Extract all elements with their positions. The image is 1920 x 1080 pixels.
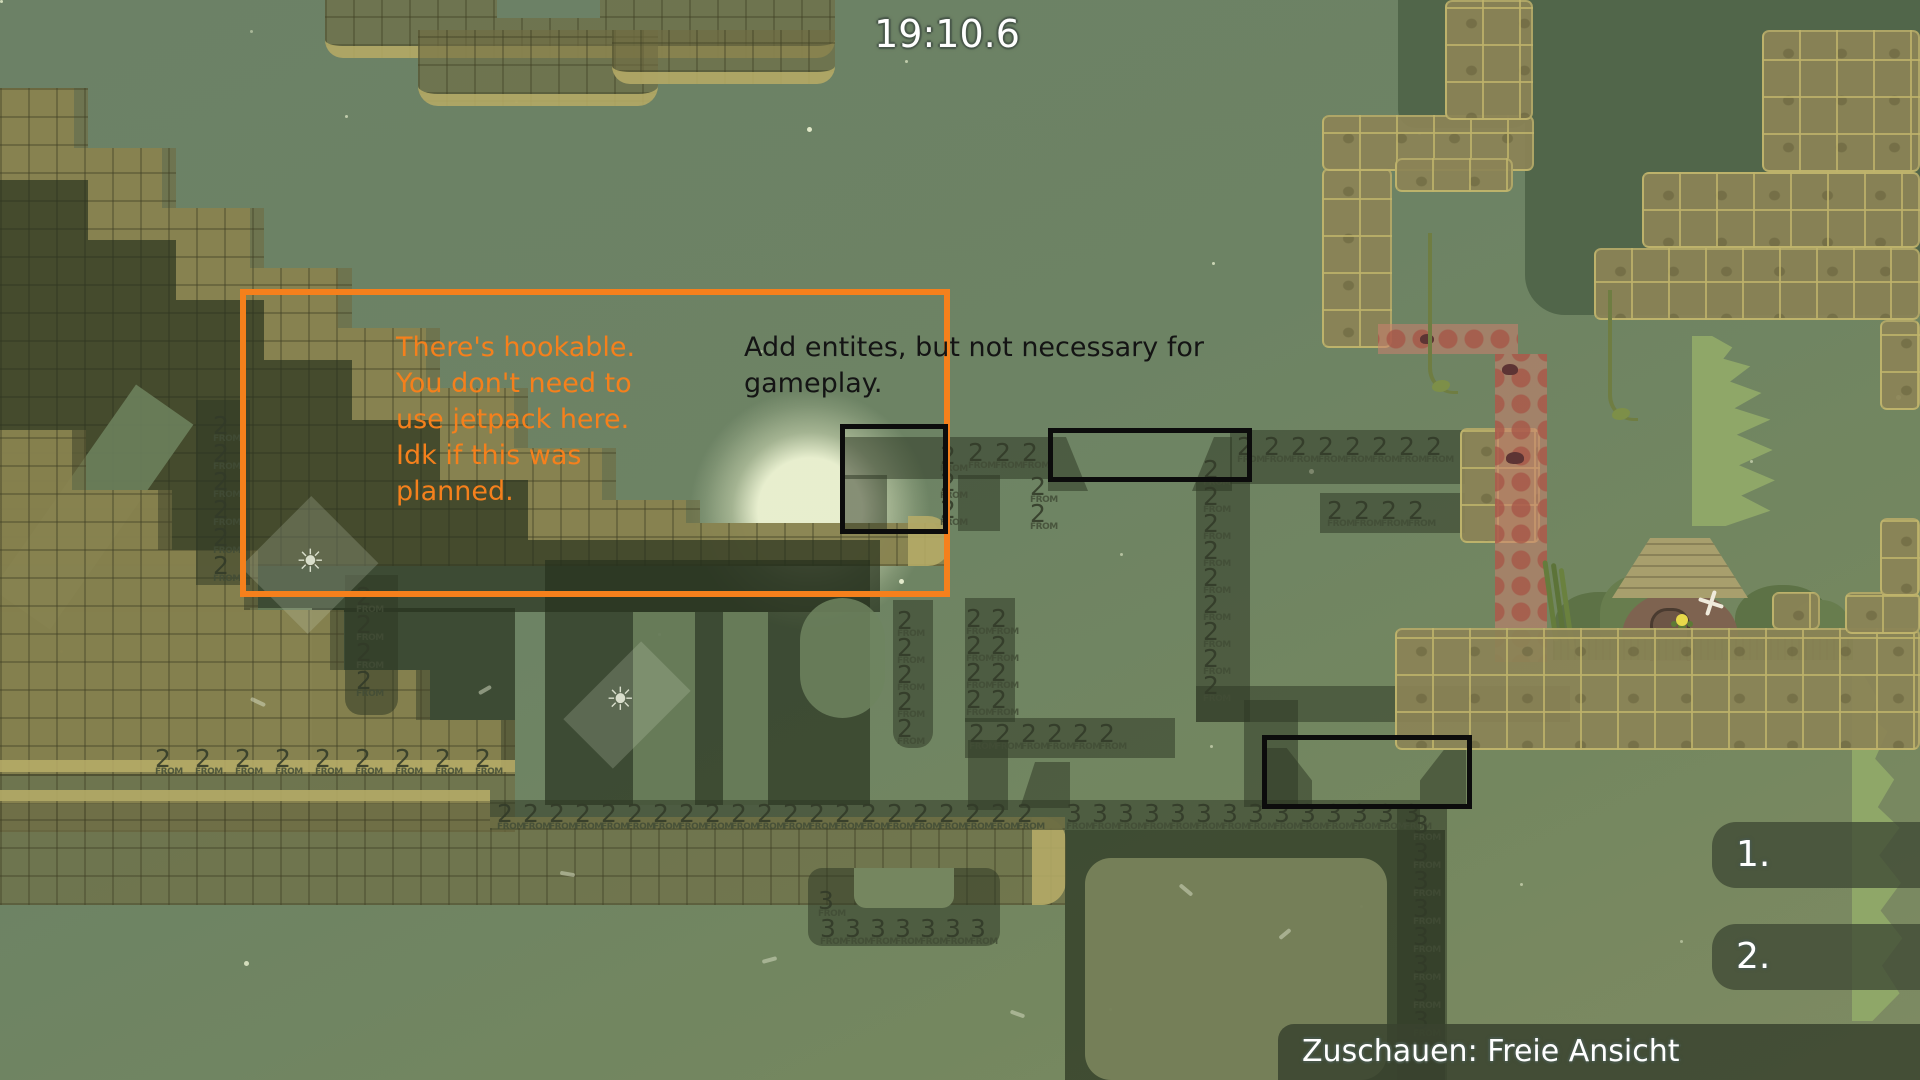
flower-icon (1676, 614, 1688, 626)
vine (1428, 233, 1458, 394)
game-viewport[interactable]: 2FROM2FROM2FROM2FROM2FROM2FROM2FROM2FROM… (0, 0, 1920, 1080)
tele-label: 2FROM (395, 746, 425, 777)
black-note: Add entites, but not necessary for gamep… (744, 330, 1264, 402)
tele-label: 2FROM (155, 746, 185, 777)
tele-label: 2FROM (1426, 434, 1456, 465)
spectator-marker-1: 1. (1712, 822, 1920, 888)
tele-label: 2FROM (968, 440, 998, 471)
orange-note: There's hookable. You don't need to use … (396, 330, 716, 510)
tele-label: 2FROM (897, 716, 927, 747)
spectator-marker-1-label: 1. (1712, 822, 1920, 888)
tele-label: 2FROM (1030, 501, 1060, 532)
sun-icon: ☀ (606, 680, 635, 718)
tele-label: 2FROM (435, 746, 465, 777)
stone-bar (1395, 158, 1513, 192)
tele-label: 2FROM (355, 746, 385, 777)
stone-column (1445, 0, 1533, 120)
tele-label: 3FROM (970, 916, 1000, 947)
stone-band (1594, 248, 1920, 320)
tele-label: 2FROM (991, 687, 1021, 718)
spectator-marker-2: 2. (1712, 924, 1920, 990)
red-trim (1495, 354, 1547, 662)
tele-label: 2FROM (315, 746, 345, 777)
tele-label: 2FROM (1327, 498, 1357, 529)
tele-label: 3FROM (818, 888, 848, 919)
tele-label: 2FROM (1318, 434, 1348, 465)
tele-label: 2FROM (356, 668, 386, 699)
tele-label: 2FROM (475, 746, 505, 777)
vine (1608, 290, 1638, 421)
tele-label: 2FROM (1381, 498, 1411, 529)
tele-label: 2FROM (1017, 801, 1047, 832)
tele-label: 2FROM (195, 746, 225, 777)
tele-label: 2FROM (213, 553, 243, 584)
tele-label: 2FROM (1203, 673, 1233, 704)
stone-step (1880, 518, 1920, 596)
black-annotation-box-1 (840, 424, 948, 534)
spectator-marker-2-label: 2. (1712, 924, 1920, 990)
tele-label: 2FROM (275, 746, 305, 777)
stone-step (1845, 592, 1920, 634)
stone-band (1642, 172, 1920, 248)
tele-label: 2FROM (1099, 721, 1129, 752)
tele-label: 2FROM (1264, 434, 1294, 465)
race-timer: 19:10.6 (874, 12, 1020, 56)
stone-platform (1395, 628, 1920, 750)
stone-block (1772, 592, 1820, 630)
black-annotation-box-2 (1048, 428, 1252, 482)
stone-corner (1762, 30, 1920, 172)
tele-label: 2FROM (995, 440, 1025, 471)
black-annotation-box-3 (1262, 735, 1472, 809)
stone-pillar (1322, 168, 1392, 348)
tele-label: 2FROM (1354, 498, 1384, 529)
bat-icon (1506, 452, 1524, 464)
tele-label: 2FROM (1408, 498, 1438, 529)
tele-label: 2FROM (1291, 434, 1321, 465)
stone-edge (1880, 320, 1920, 410)
spectate-bar-label: Zuschauen: Freie Ansicht (1278, 1024, 1920, 1080)
tele-label: 2FROM (235, 746, 265, 777)
tele-label: 2FROM (1399, 434, 1429, 465)
tele-label: 2FROM (1372, 434, 1402, 465)
tele-label: 2FROM (1345, 434, 1375, 465)
spectate-bar: Zuschauen: Freie Ansicht (1278, 1024, 1920, 1080)
bat-icon (1502, 364, 1518, 375)
